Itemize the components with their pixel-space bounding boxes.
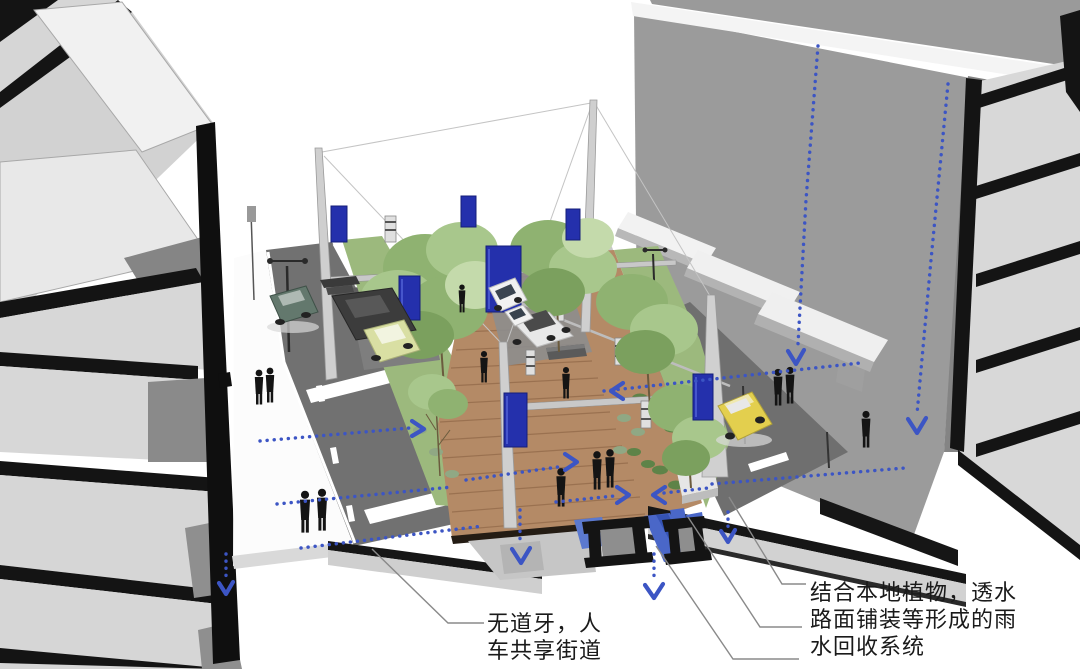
annotation-line: 结合本地植物，透水 (810, 579, 1017, 606)
diagram-canvas: 无道牙，人 车共享街道 结合本地植物，透水 路面铺装等形成的雨 水回收系统 (0, 0, 1080, 669)
annotation-line: 车共享街道 (487, 637, 602, 664)
axonometric-scene (0, 0, 1080, 669)
left-building-section (0, 0, 242, 669)
annotation-line: 路面铺装等形成的雨 (810, 606, 1017, 633)
annotation-rainwater-system: 结合本地植物，透水 路面铺装等形成的雨 水回收系统 (810, 579, 1017, 660)
annotation-line: 水回收系统 (810, 633, 1017, 660)
down-arrow-icon (645, 584, 663, 598)
annotation-line: 无道牙，人 (487, 610, 602, 637)
annotation-shared-street: 无道牙，人 车共享街道 (487, 610, 602, 664)
